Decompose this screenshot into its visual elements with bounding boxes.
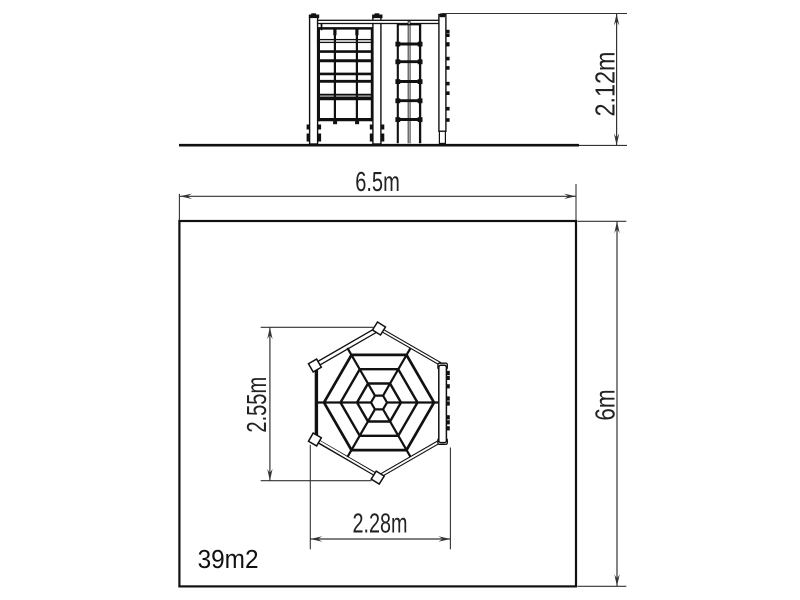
- svg-text:2.12m: 2.12m: [591, 52, 621, 117]
- svg-text:6.5m: 6.5m: [355, 167, 400, 198]
- svg-text:6m: 6m: [590, 389, 621, 420]
- svg-text:2.28m: 2.28m: [352, 508, 407, 539]
- svg-text:2.55m: 2.55m: [242, 377, 273, 433]
- svg-text:39m2: 39m2: [198, 545, 259, 574]
